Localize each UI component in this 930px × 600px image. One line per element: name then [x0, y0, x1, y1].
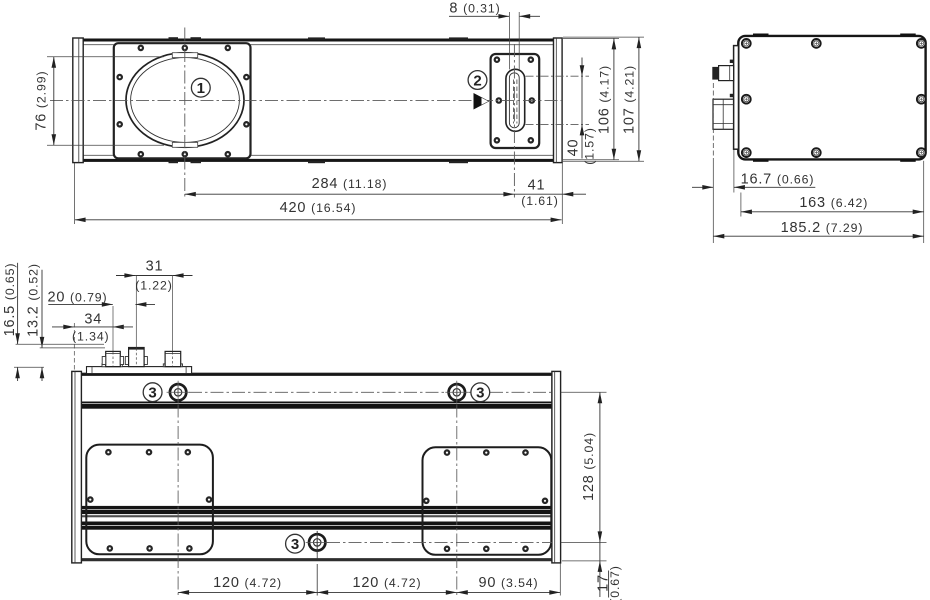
svg-text:16.5 (0.65): 16.5 (0.65)	[2, 263, 18, 337]
svg-text:3: 3	[291, 536, 299, 553]
svg-text:163 (6.42): 163 (6.42)	[799, 195, 868, 211]
svg-text:(0.67): (0.67)	[608, 565, 622, 600]
svg-text:(1.34): (1.34)	[72, 329, 110, 343]
svg-text:40: 40	[566, 139, 582, 157]
svg-text:(1.22): (1.22)	[135, 278, 173, 292]
svg-text:41: 41	[528, 177, 546, 193]
svg-text:106 (4.17): 106 (4.17)	[596, 65, 612, 134]
svg-text:13.2 (0.52): 13.2 (0.52)	[26, 263, 42, 337]
svg-text:120 (4.72): 120 (4.72)	[353, 575, 422, 591]
svg-text:3: 3	[476, 385, 484, 402]
svg-text:107 (4.21): 107 (4.21)	[621, 65, 637, 134]
svg-text:1: 1	[197, 80, 205, 97]
svg-text:128 (5.04): 128 (5.04)	[581, 432, 597, 501]
svg-text:16.7 (0.66): 16.7 (0.66)	[741, 171, 815, 187]
svg-text:284 (11.18): 284 (11.18)	[312, 176, 388, 192]
svg-text:420 (16.54): 420 (16.54)	[280, 200, 357, 216]
svg-text:90 (3.54): 90 (3.54)	[478, 575, 538, 591]
svg-text:8 (0.31): 8 (0.31)	[449, 1, 500, 17]
svg-text:120 (4.72): 120 (4.72)	[213, 575, 282, 591]
svg-text:76 (2.99): 76 (2.99)	[34, 71, 50, 131]
svg-text:34: 34	[84, 312, 102, 328]
svg-text:(1.61): (1.61)	[521, 194, 559, 208]
svg-text:31: 31	[146, 258, 164, 274]
svg-text:185.2 (7.29): 185.2 (7.29)	[781, 220, 864, 236]
svg-text:(1.57): (1.57)	[583, 127, 597, 165]
svg-text:3: 3	[148, 385, 156, 402]
svg-text:2: 2	[473, 72, 481, 89]
svg-text:20 (0.79): 20 (0.79)	[47, 290, 107, 306]
